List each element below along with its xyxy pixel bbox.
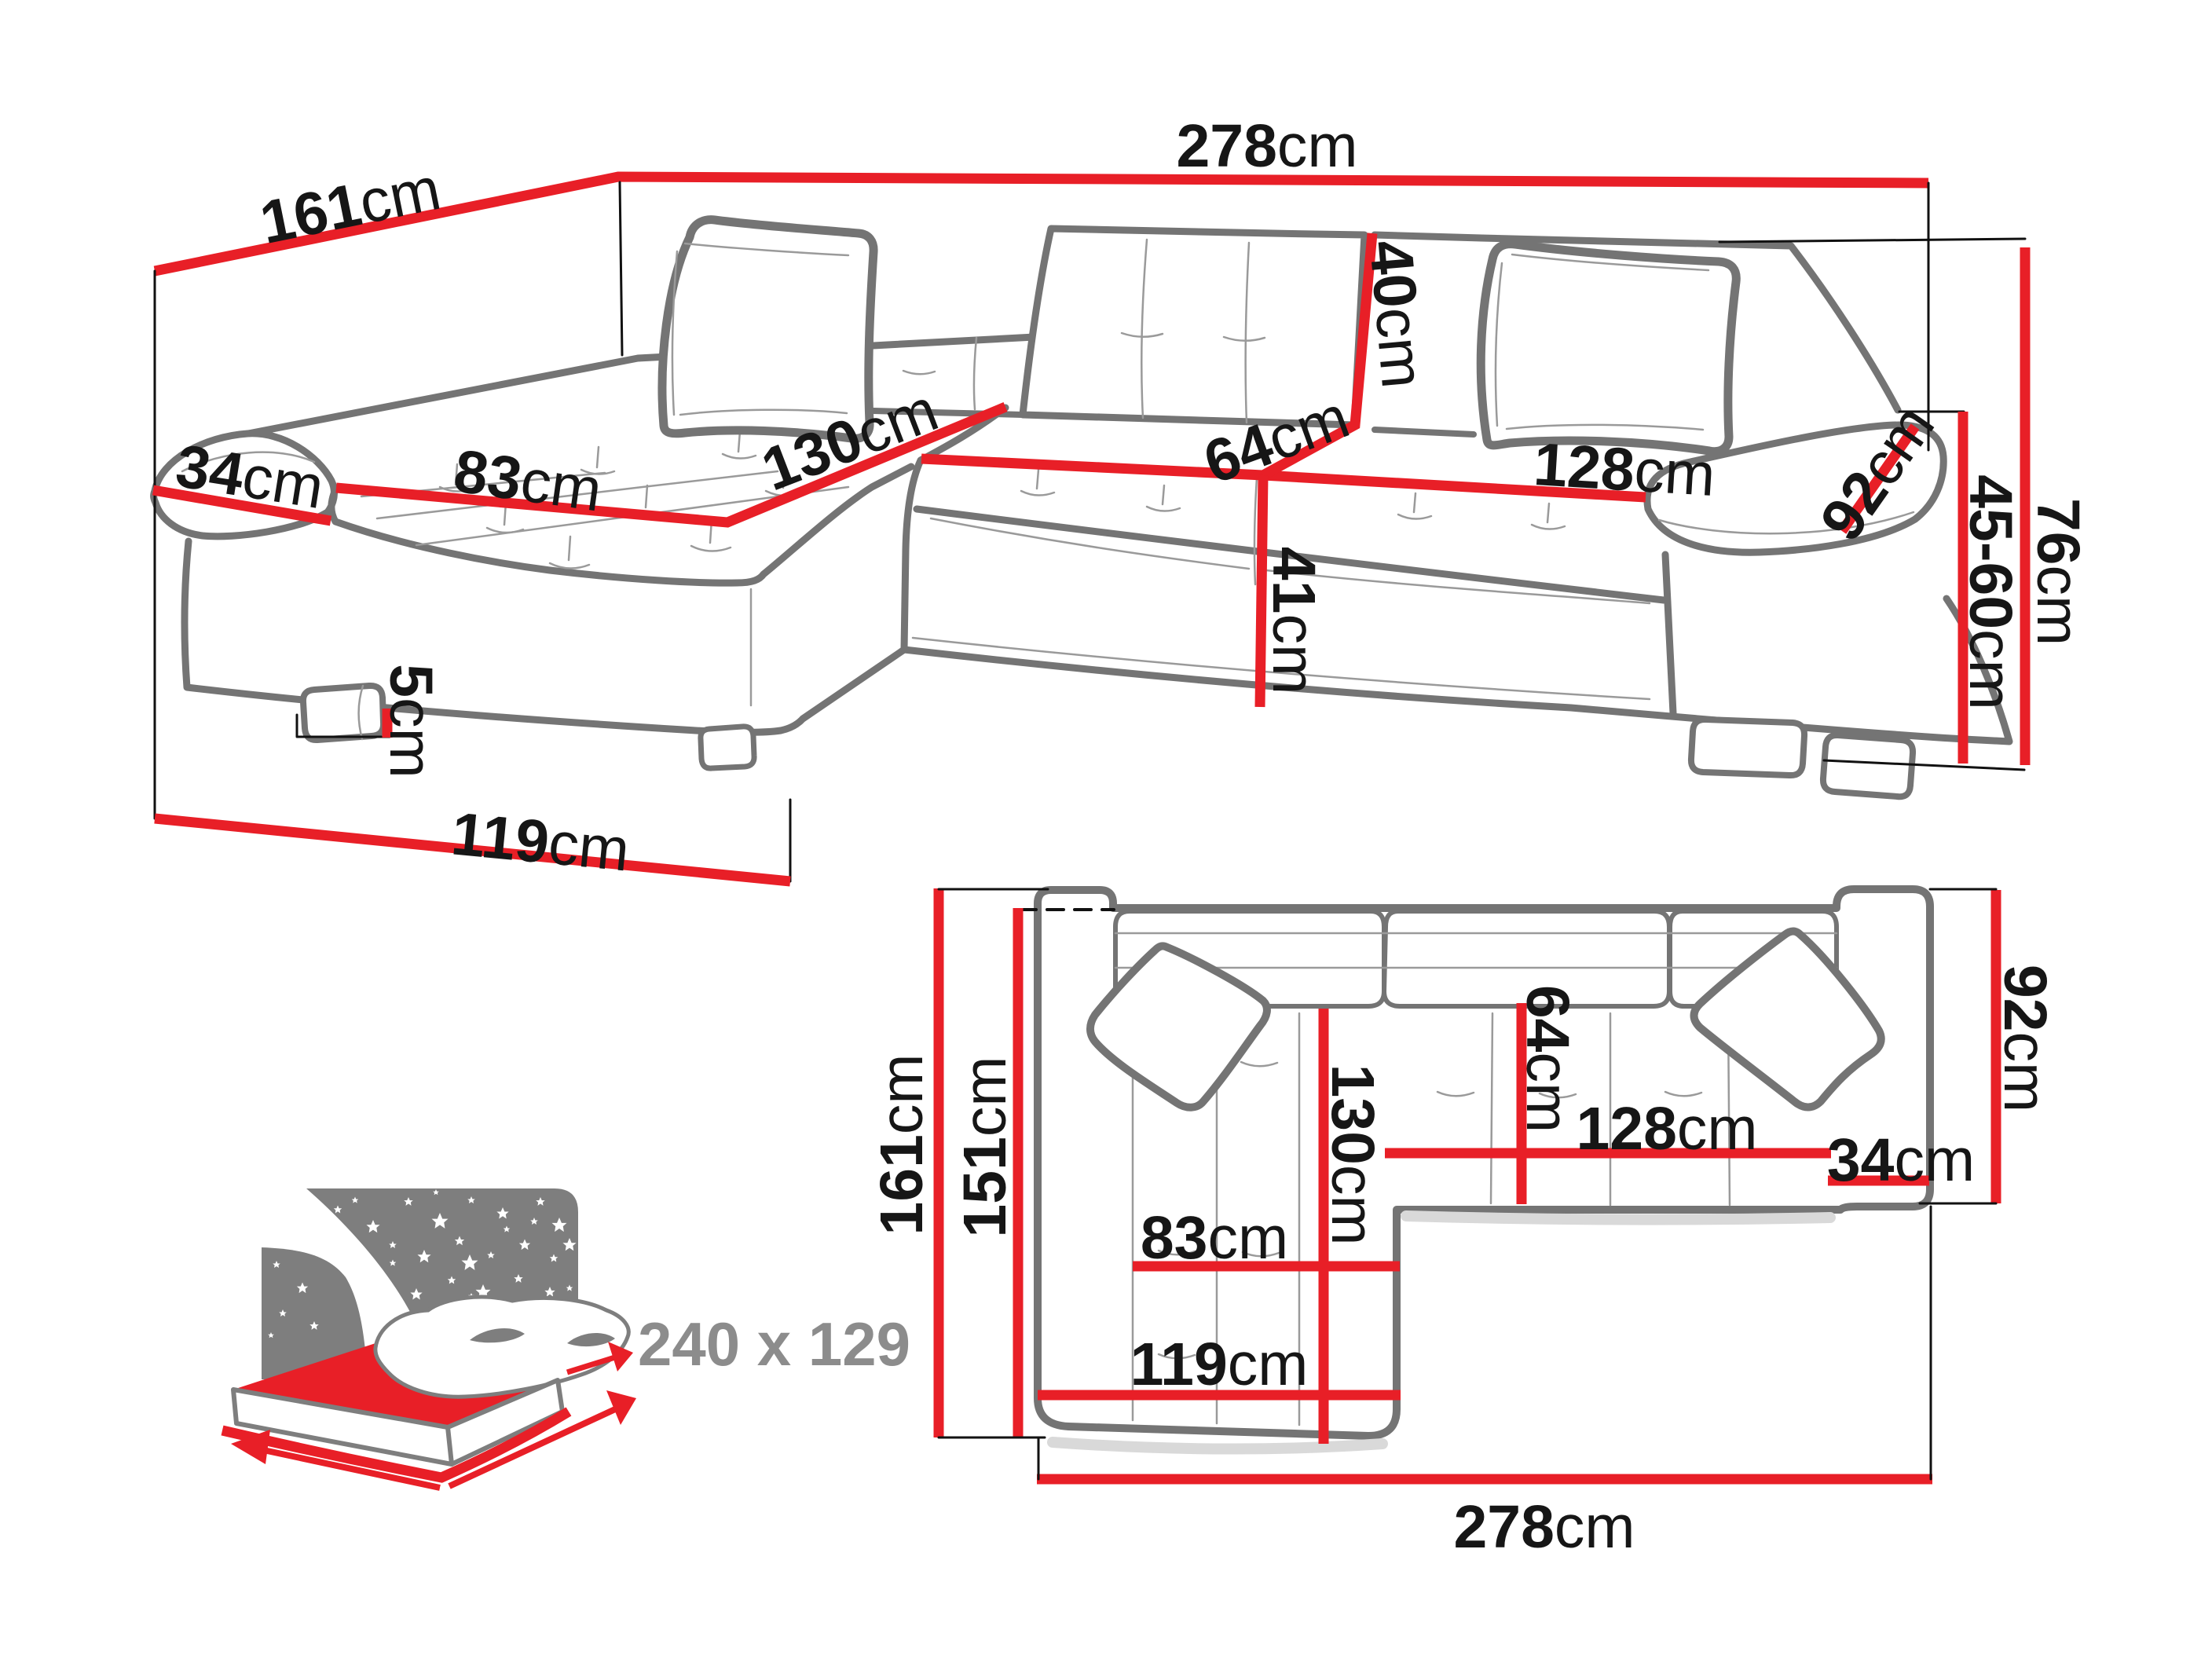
svg-text:45-60cm: 45-60cm [1957, 474, 2024, 710]
svg-text:278cm: 278cm [1176, 112, 1357, 180]
svg-text:40cm: 40cm [1357, 237, 1437, 390]
svg-text:128cm: 128cm [1532, 430, 1717, 509]
svg-text:151cm: 151cm [951, 1056, 1019, 1237]
svg-text:278cm: 278cm [1453, 1493, 1635, 1561]
svg-text:83cm: 83cm [450, 437, 606, 524]
svg-text:76cm: 76cm [2024, 498, 2092, 646]
svg-text:64cm: 64cm [1514, 985, 1581, 1133]
svg-text:92cm: 92cm [1991, 965, 2059, 1112]
svg-text:119cm: 119cm [449, 800, 632, 884]
svg-text:5cm: 5cm [377, 664, 445, 778]
svg-text:161cm: 161cm [255, 155, 446, 257]
svg-text:128cm: 128cm [1576, 1095, 1757, 1163]
svg-text:130cm: 130cm [1319, 1064, 1386, 1245]
svg-text:83cm: 83cm [1141, 1204, 1288, 1272]
svg-text:41cm: 41cm [1260, 547, 1328, 694]
svg-text:161cm: 161cm [868, 1053, 936, 1235]
svg-text:34cm: 34cm [1827, 1126, 1975, 1194]
svg-text:240 x 129: 240 x 129 [638, 1309, 910, 1379]
svg-text:119cm: 119cm [1130, 1331, 1309, 1398]
